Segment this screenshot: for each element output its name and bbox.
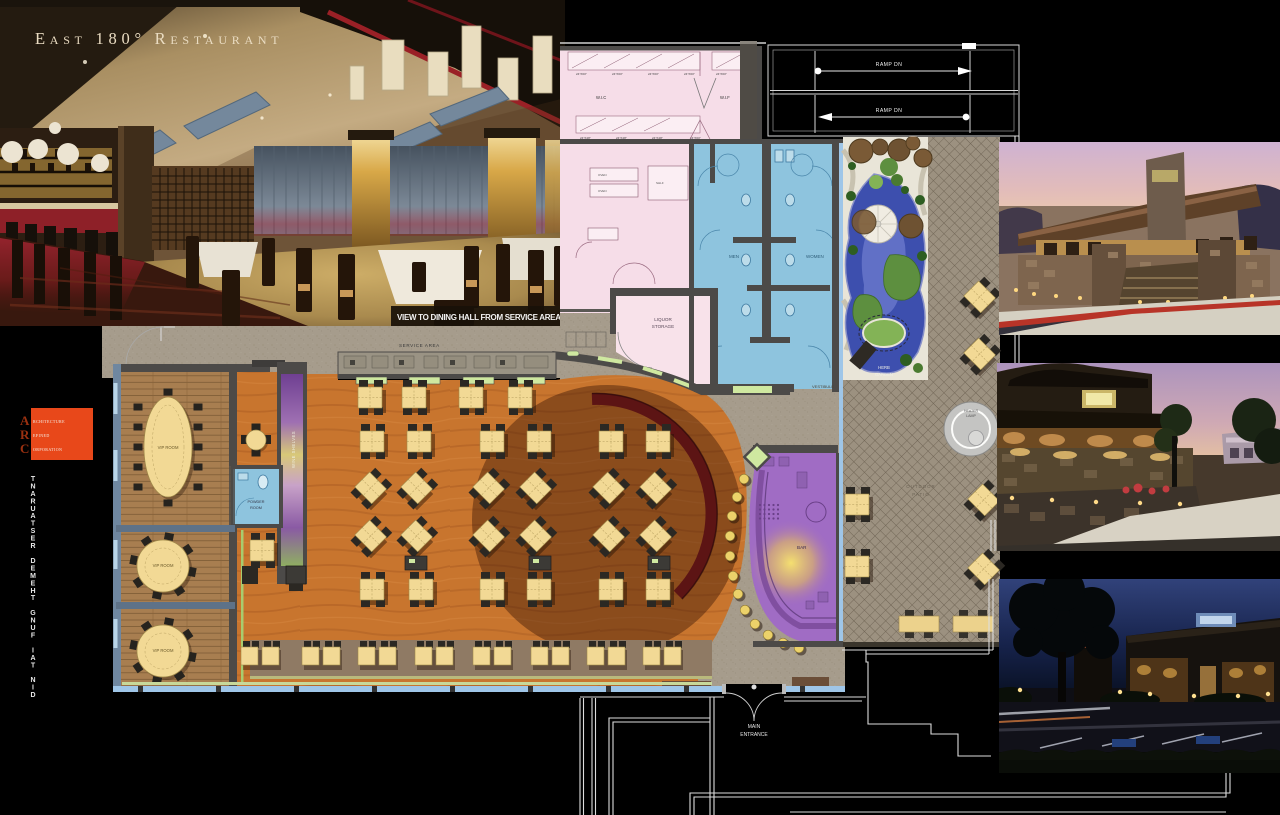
svg-text:ENTRANCE: ENTRANCE bbox=[740, 732, 768, 738]
svg-text:VIEW TO DINING HALL FROM SERVI: VIEW TO DINING HALL FROM SERVICE AREA bbox=[397, 313, 561, 322]
svg-text:T: T bbox=[31, 595, 36, 602]
svg-text:VESTIBULE: VESTIBULE bbox=[812, 384, 834, 389]
svg-text:SHLF: SHLF bbox=[656, 181, 664, 185]
svg-text:MEN: MEN bbox=[729, 254, 739, 259]
svg-text:D: D bbox=[30, 558, 35, 565]
svg-text:I: I bbox=[32, 647, 34, 654]
svg-text:STORAGE: STORAGE bbox=[652, 324, 674, 329]
svg-text:W.I.C: W.I.C bbox=[596, 95, 606, 100]
svg-text:OUTDOOR: OUTDOOR bbox=[906, 484, 935, 489]
svg-text:T: T bbox=[31, 662, 36, 669]
svg-text:R: R bbox=[30, 498, 35, 505]
svg-text:RAMP DN: RAMP DN bbox=[876, 108, 903, 114]
svg-text:A: A bbox=[30, 513, 35, 520]
svg-text:E: E bbox=[31, 565, 36, 572]
svg-text:I: I bbox=[32, 685, 34, 692]
svg-text:T: T bbox=[31, 476, 36, 483]
svg-text:HERB: HERB bbox=[878, 365, 890, 370]
svg-text:W.I.F: W.I.F bbox=[720, 95, 730, 100]
svg-text:H: H bbox=[30, 588, 35, 595]
svg-text:LIQUOR: LIQUOR bbox=[654, 317, 672, 322]
svg-text:S: S bbox=[31, 528, 36, 535]
svg-text:OVEN: OVEN bbox=[598, 189, 607, 193]
svg-text:24"X60": 24"X60" bbox=[684, 72, 695, 76]
svg-text:24"X60": 24"X60" bbox=[716, 72, 727, 76]
svg-text:A: A bbox=[30, 491, 35, 498]
svg-text:POWDER: POWDER bbox=[247, 500, 264, 504]
svg-text:LAMP: LAMP bbox=[966, 414, 976, 418]
svg-text:GARDEN: GARDEN bbox=[875, 372, 893, 377]
svg-text:VIP ROOM: VIP ROOM bbox=[158, 445, 179, 450]
svg-text:T: T bbox=[31, 521, 36, 528]
svg-text:N: N bbox=[30, 483, 35, 490]
svg-text:D: D bbox=[30, 692, 35, 699]
svg-text:R: R bbox=[20, 427, 30, 442]
svg-text:ROOM: ROOM bbox=[250, 506, 262, 510]
svg-text:R: R bbox=[30, 543, 35, 550]
svg-text:WINE SHELVES: WINE SHELVES bbox=[291, 431, 296, 468]
svg-text:E: E bbox=[31, 580, 36, 587]
svg-text:24"X60": 24"X60" bbox=[648, 72, 659, 76]
svg-text:BAR: BAR bbox=[797, 545, 807, 550]
svg-text:A: A bbox=[30, 655, 35, 662]
svg-text:orporation: orporation bbox=[33, 447, 62, 453]
svg-text:F: F bbox=[31, 633, 36, 640]
svg-text:24"X60": 24"X60" bbox=[612, 72, 623, 76]
svg-text:A: A bbox=[20, 413, 30, 428]
svg-text:N: N bbox=[30, 677, 35, 684]
svg-text:efined: efined bbox=[33, 433, 50, 439]
svg-text:U: U bbox=[30, 625, 35, 632]
svg-text:24"X60": 24"X60" bbox=[576, 72, 587, 76]
svg-text:VIP ROOM: VIP ROOM bbox=[153, 648, 174, 653]
svg-text:rchitecture: rchitecture bbox=[33, 419, 65, 425]
svg-text:PATIO: PATIO bbox=[912, 492, 930, 497]
svg-text:C: C bbox=[20, 441, 29, 456]
svg-text:E: E bbox=[31, 536, 36, 543]
svg-text:N: N bbox=[30, 618, 35, 625]
svg-text:VIP ROOM: VIP ROOM bbox=[153, 563, 174, 568]
svg-text:M: M bbox=[30, 573, 36, 580]
svg-text:G: G bbox=[30, 610, 36, 617]
svg-text:East 180° Restaurant: East 180° Restaurant bbox=[35, 29, 282, 48]
svg-text:HEATER: HEATER bbox=[964, 409, 979, 413]
svg-text:SERVICE AREA: SERVICE AREA bbox=[399, 343, 440, 348]
svg-text:RAMP DN: RAMP DN bbox=[876, 62, 903, 68]
svg-text:U: U bbox=[30, 506, 35, 513]
svg-text:OVEN: OVEN bbox=[598, 173, 607, 177]
svg-text:WOMEN: WOMEN bbox=[806, 254, 824, 259]
svg-text:MAIN: MAIN bbox=[748, 724, 761, 730]
